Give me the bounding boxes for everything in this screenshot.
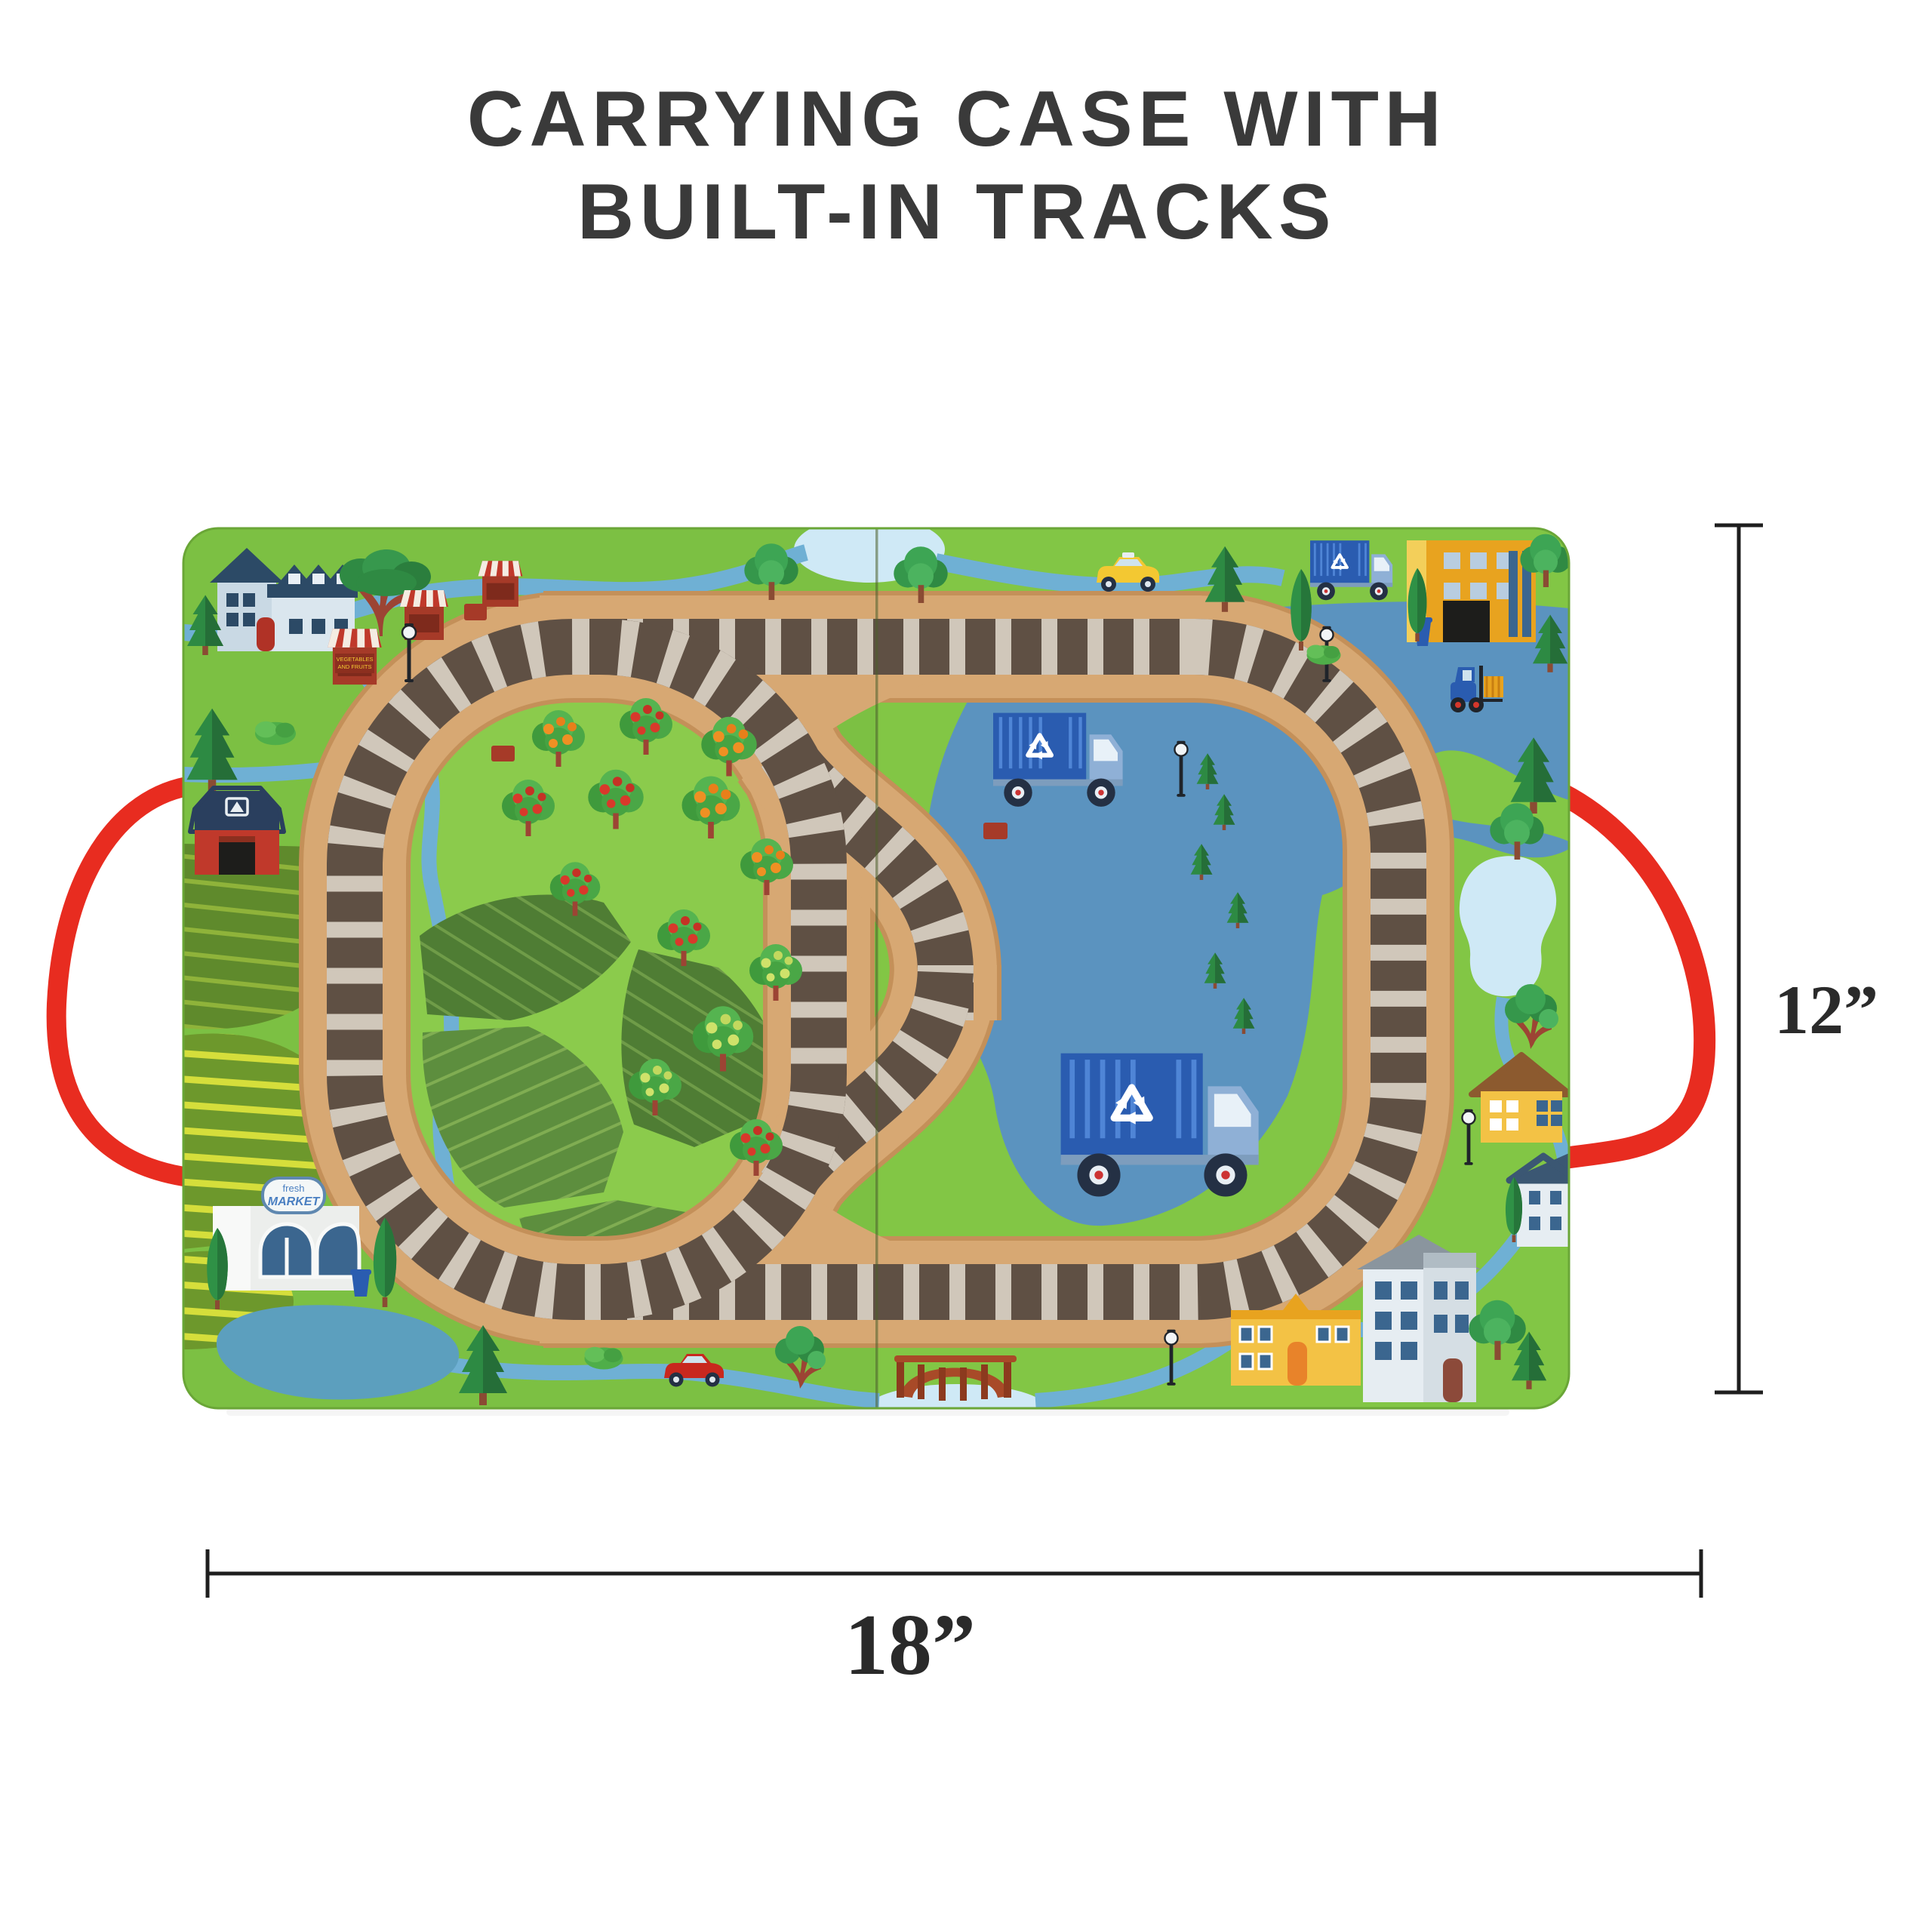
svg-text:MARKET: MARKET	[268, 1195, 321, 1208]
svg-text:CARRYING CASE WITH: CARRYING CASE WITH	[467, 75, 1447, 163]
svg-text:12”: 12”	[1774, 971, 1878, 1048]
svg-text:BUILT-IN TRACKS: BUILT-IN TRACKS	[577, 168, 1337, 256]
svg-text:18”: 18”	[844, 1597, 976, 1694]
svg-text:fresh: fresh	[283, 1183, 305, 1194]
svg-text:VEGETABLES: VEGETABLES	[336, 656, 373, 663]
svg-text:AND FRUITS: AND FRUITS	[338, 663, 372, 670]
